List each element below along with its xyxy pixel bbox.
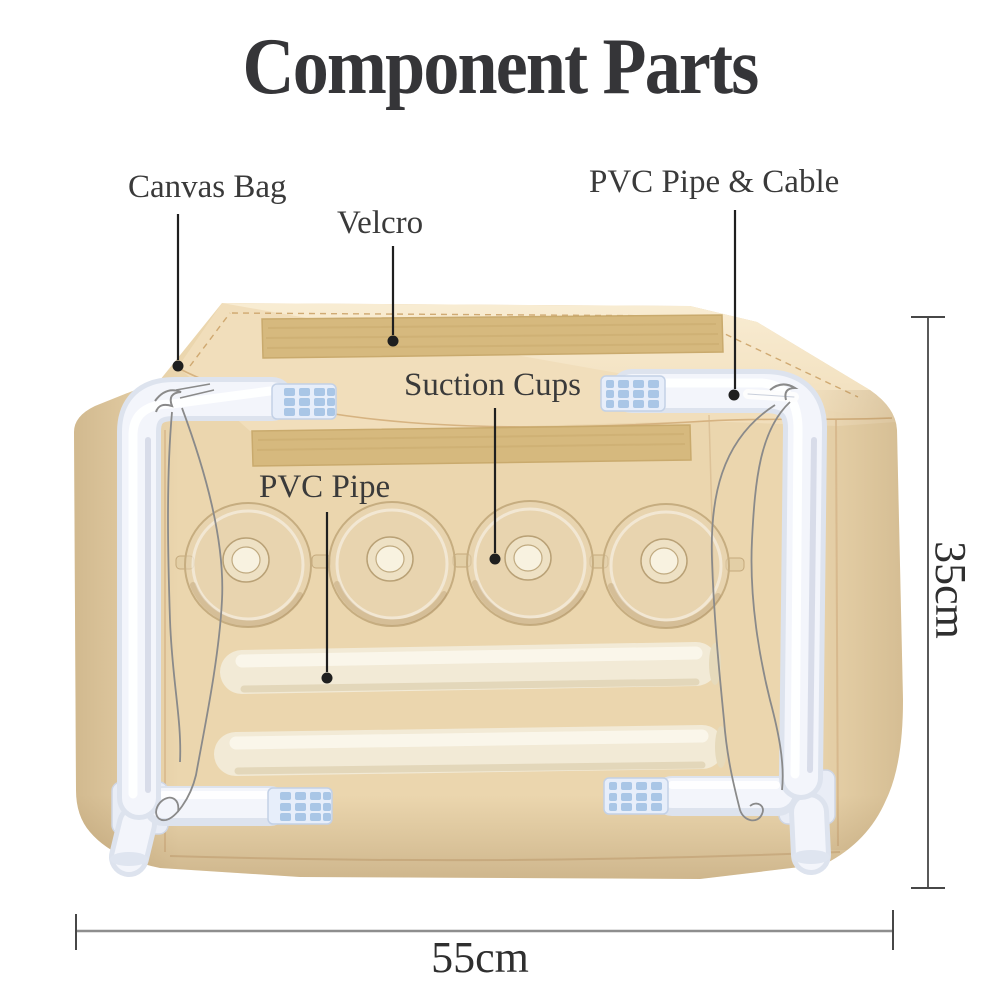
rib-connector-top-right (601, 376, 665, 411)
rib-connector-bottom-left (268, 788, 332, 824)
product-photo (0, 0, 1000, 1000)
rib-connector-bottom-right (604, 778, 668, 814)
label-pvc-pipe-cable: PVC Pipe & Cable (589, 166, 839, 199)
cream-pipe-2 (236, 726, 727, 771)
suction-cup-3 (467, 501, 593, 625)
page-title: Component Parts (50, 22, 950, 113)
suction-cup-1 (185, 503, 311, 627)
suction-cup-4 (603, 504, 729, 628)
velcro-strip-top (262, 315, 723, 358)
label-canvas-bag: Canvas Bag (128, 171, 287, 204)
rib-connector-top-left (272, 384, 336, 419)
pointer-canvas-bag (173, 214, 184, 372)
dimension-width-label: 55cm (380, 936, 580, 980)
cream-pipe-1 (242, 643, 721, 689)
velcro-strip-inner (252, 425, 691, 466)
label-velcro: Velcro (337, 207, 423, 240)
label-suction-cups: Suction Cups (404, 369, 581, 402)
dimension-height-label: 35cm (928, 530, 972, 650)
suction-cup-2 (329, 502, 455, 626)
label-pvc-pipe: PVC Pipe (259, 471, 390, 504)
component-parts-infographic: Component Parts Canvas Bag Velcro PVC Pi… (0, 0, 1000, 1000)
